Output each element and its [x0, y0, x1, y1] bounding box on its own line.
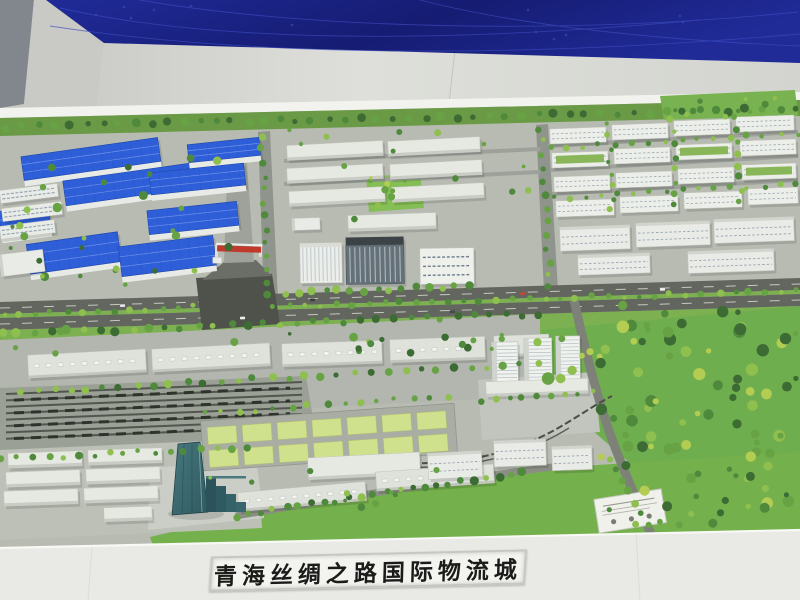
- tower-step-1: [206, 478, 216, 512]
- building-grid: [674, 119, 733, 139]
- building-grid: [684, 191, 745, 212]
- building-green: [676, 143, 735, 163]
- building-slab: [86, 467, 163, 488]
- building-big: [552, 445, 595, 473]
- building-admC: [420, 247, 477, 287]
- building-grid: [740, 139, 799, 159]
- building-slab: [84, 486, 161, 507]
- building-grid: [614, 147, 673, 167]
- building-admB: [346, 236, 407, 287]
- tower-step-4: [236, 502, 246, 512]
- scene-illustration: [0, 0, 800, 600]
- scale-model-photo: 青海丝绸之路国际物流城: [0, 0, 800, 600]
- building-box: [292, 217, 323, 233]
- model-title-text: 青海丝绸之路国际物流城: [214, 550, 523, 591]
- building-big: [494, 439, 549, 470]
- tower-step-2: [216, 486, 226, 512]
- building-grid: [554, 175, 613, 195]
- building-admA: [300, 243, 345, 287]
- building-slab: [6, 470, 83, 491]
- model-table: [0, 90, 800, 600]
- building-green: [552, 151, 611, 171]
- building-big: [560, 225, 633, 254]
- building-slab: [4, 489, 81, 510]
- building-big: [688, 248, 777, 276]
- building-big: [714, 217, 797, 247]
- building-slab: [348, 212, 439, 234]
- building-grid: [616, 171, 675, 191]
- building-big: [578, 253, 653, 279]
- building-grid: [678, 167, 737, 187]
- building-slab: [104, 506, 155, 525]
- building-big: [636, 221, 713, 251]
- building-green: [742, 163, 799, 183]
- building-grid: [748, 187, 800, 208]
- tower-step-3: [226, 494, 236, 512]
- guard-booth: [213, 257, 222, 263]
- building-slab: [88, 448, 165, 469]
- model-title-plate: 青海丝绸之路国际物流城: [209, 549, 527, 591]
- building-grid: [612, 123, 671, 143]
- building-slab: [8, 451, 85, 472]
